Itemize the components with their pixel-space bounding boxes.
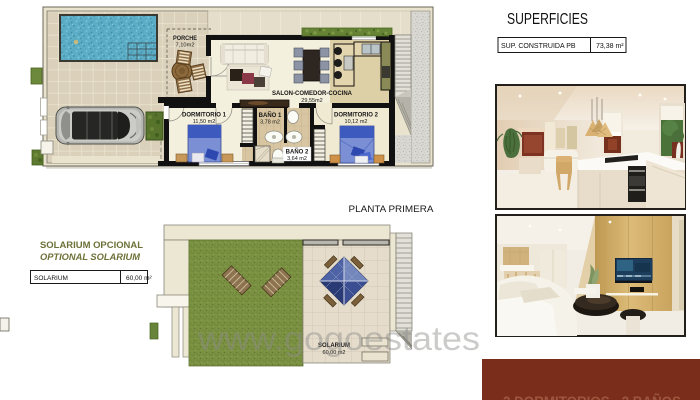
svg-text:PORCHE: PORCHE bbox=[173, 35, 198, 42]
svg-text:BAÑO 2: BAÑO 2 bbox=[286, 149, 309, 156]
svg-text:60,00 m²: 60,00 m² bbox=[126, 275, 152, 282]
svg-text:SOLARIUM: SOLARIUM bbox=[34, 275, 68, 282]
svg-text:OPTIONAL SOLARIUM: OPTIONAL SOLARIUM bbox=[40, 252, 141, 263]
svg-text:www.gogoestates: www.gogoestates bbox=[197, 320, 480, 357]
svg-text:PLANTA PRIMERA: PLANTA PRIMERA bbox=[349, 204, 435, 215]
svg-text:SOLARIUM OPCIONAL: SOLARIUM OPCIONAL bbox=[40, 240, 143, 251]
svg-text:SALON-COMEDOR-COCINA: SALON-COMEDOR-COCINA bbox=[272, 91, 353, 97]
svg-text:10,12 m2: 10,12 m2 bbox=[345, 119, 368, 125]
svg-text:3,78 m2: 3,78 m2 bbox=[260, 120, 280, 126]
svg-text:SUPERFICIES: SUPERFICIES bbox=[507, 11, 588, 28]
svg-text:29,55m2: 29,55m2 bbox=[301, 98, 322, 104]
svg-text:BAÑO 1: BAÑO 1 bbox=[259, 112, 282, 119]
svg-text:11,50 m2: 11,50 m2 bbox=[193, 119, 216, 125]
svg-text:7,10m2: 7,10m2 bbox=[176, 43, 195, 49]
svg-text:DORMITORIO 2: DORMITORIO 2 bbox=[334, 112, 378, 119]
svg-text:3,64 m2: 3,64 m2 bbox=[287, 156, 307, 162]
svg-text:2 DORMITORIOS - 2 BAÑOS: 2 DORMITORIOS - 2 BAÑOS bbox=[503, 393, 681, 400]
svg-text:73,38 m²: 73,38 m² bbox=[596, 43, 624, 50]
svg-text:SUP. CONSTRUIDA PB: SUP. CONSTRUIDA PB bbox=[501, 43, 576, 50]
svg-text:DORMITORIO 1: DORMITORIO 1 bbox=[182, 112, 226, 119]
